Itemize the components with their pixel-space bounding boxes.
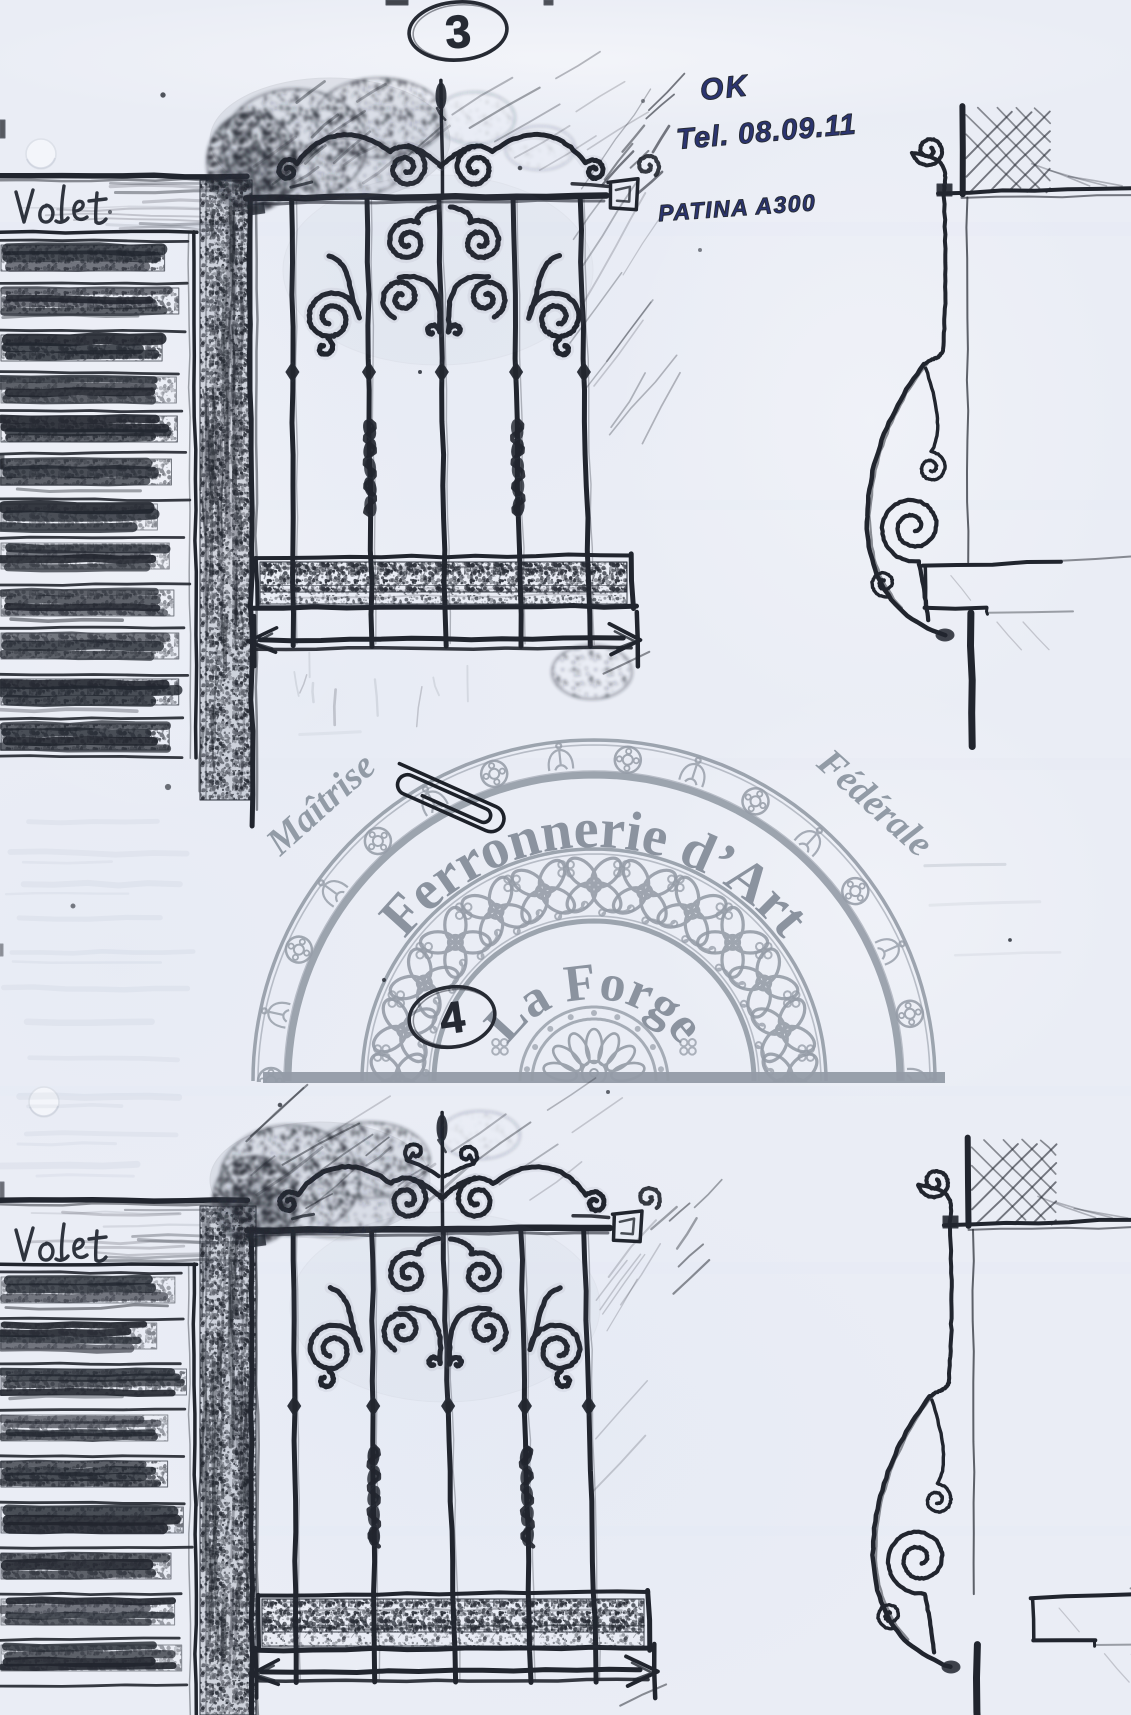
svg-text:3: 3 (443, 5, 472, 59)
svg-text:OK: OK (698, 69, 751, 107)
